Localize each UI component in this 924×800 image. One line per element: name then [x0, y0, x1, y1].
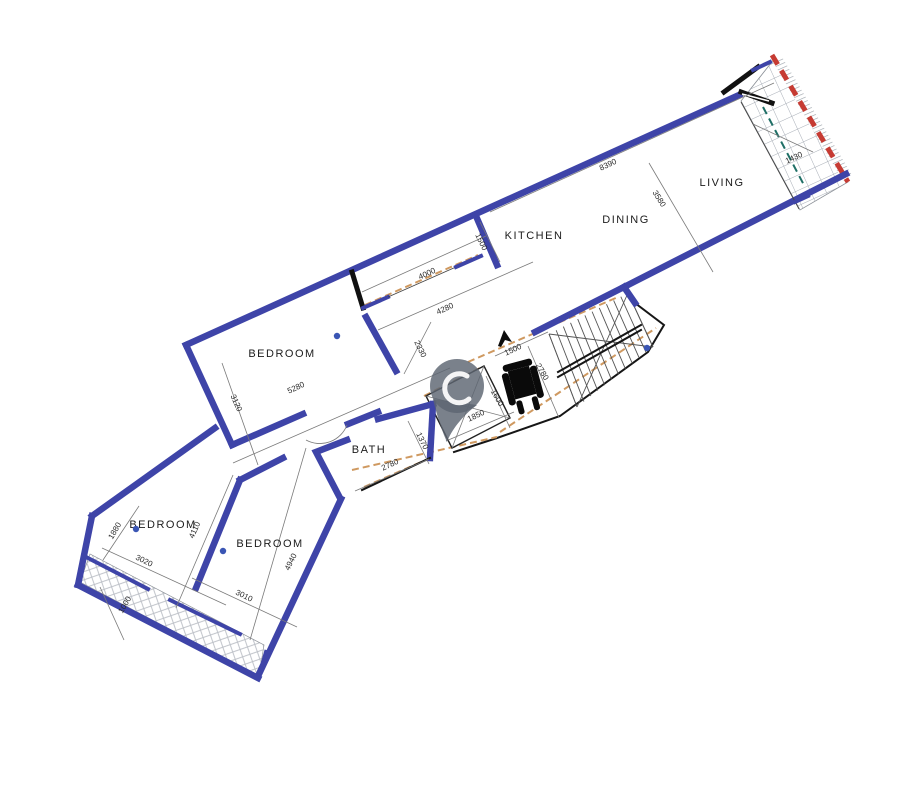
room-label-dining: DINING	[602, 214, 650, 226]
floor-plan-drawing: LIVINGDININGKITCHENBEDROOMBATHBEDROOMBED…	[0, 0, 924, 800]
wall-bath-top	[378, 404, 433, 419]
wall-bath-right	[430, 404, 433, 458]
dimension-label: 3120	[229, 393, 245, 413]
wall-bedroom-right	[366, 317, 396, 371]
floor-plan-canvas: LIVINGDININGKITCHENBEDROOMBATHBEDROOMBED…	[0, 0, 924, 800]
garden-terrace	[80, 554, 264, 676]
dimension-label: 4940	[283, 551, 299, 571]
wall-bedroom-divider	[196, 480, 240, 588]
dimension-label: 3010	[234, 588, 254, 604]
room-point-marker	[644, 345, 650, 351]
wall-bedroom-bottom	[232, 414, 303, 445]
room-label-kitchen: KITCHEN	[505, 230, 564, 242]
room-label-bedroom: BEDROOM	[248, 348, 315, 360]
room-label-living: LIVING	[699, 177, 744, 189]
dimension-label: 5280	[286, 380, 306, 396]
room-label-bedroom: BEDROOM	[236, 538, 303, 550]
dimension-label: 4280	[435, 301, 455, 317]
dimension-label: 2330	[412, 339, 428, 359]
room-point-marker	[334, 333, 340, 339]
dimension-label: 4000	[417, 266, 437, 282]
room-label-bedroom: BEDROOM	[129, 519, 196, 531]
room-label-bath: BATH	[352, 444, 387, 456]
dimension-label: 3020	[134, 553, 154, 569]
wall-stair-upper	[535, 287, 624, 332]
wall-bath-chamfer	[316, 440, 347, 498]
dimension-label: 1880	[106, 520, 123, 540]
wall-top-long	[186, 95, 739, 345]
wall-wing-right	[259, 499, 341, 674]
dimension-label: 3580	[651, 189, 668, 209]
wall-wing-top	[92, 428, 215, 516]
room-point-marker	[220, 548, 226, 554]
room-point-marker	[133, 526, 139, 532]
